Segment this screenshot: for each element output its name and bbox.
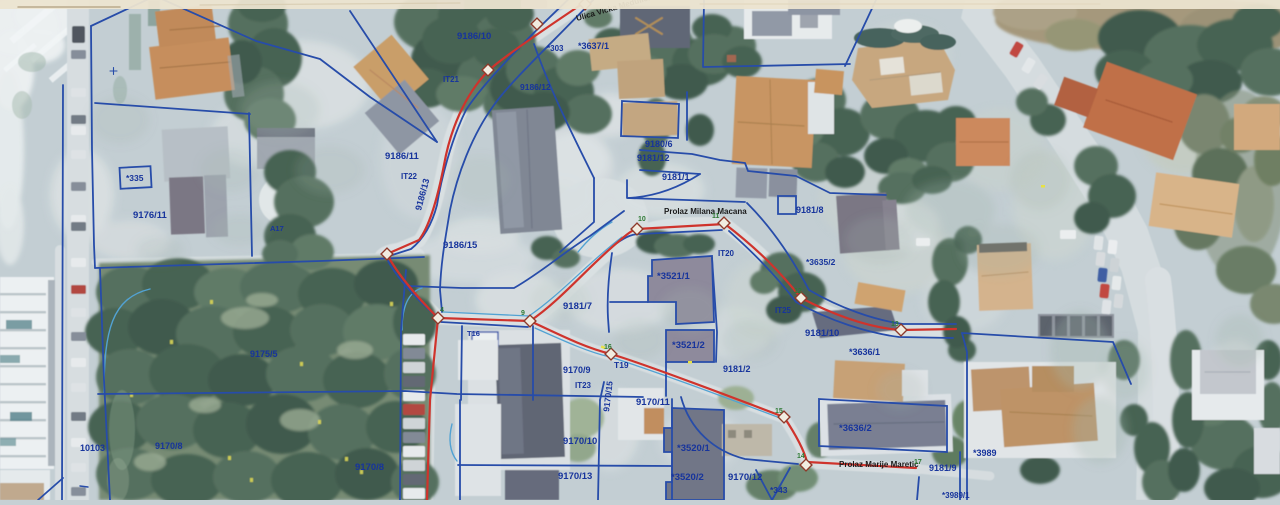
svg-text:9181/10: 9181/10	[805, 328, 839, 339]
svg-text:9186/11: 9186/11	[385, 151, 420, 162]
svg-text:10: 10	[638, 216, 646, 223]
svg-text:11: 11	[712, 213, 720, 220]
svg-text:9170/12: 9170/12	[728, 472, 762, 483]
svg-text:9181/8: 9181/8	[796, 205, 824, 215]
svg-text:Prolaz Marije Maretic: Prolaz Marije Maretic	[839, 460, 919, 469]
svg-text:9181/12: 9181/12	[637, 153, 670, 163]
svg-text:*3637/1: *3637/1	[578, 41, 609, 51]
svg-text:9170/9: 9170/9	[563, 365, 591, 375]
svg-text:9181/2: 9181/2	[723, 364, 751, 374]
svg-text:16: 16	[604, 344, 612, 351]
svg-text:10103: 10103	[80, 443, 105, 453]
svg-text:9170/8: 9170/8	[355, 462, 384, 473]
svg-text:*343: *343	[770, 485, 788, 495]
svg-text:*3520/1: *3520/1	[677, 443, 710, 454]
svg-text:9186/15: 9186/15	[443, 240, 478, 251]
svg-text:IT25: IT25	[775, 306, 792, 315]
svg-text:*3636/2: *3636/2	[839, 423, 872, 434]
svg-text:9181/1: 9181/1	[662, 172, 690, 182]
svg-text:4: 4	[440, 307, 444, 314]
svg-text:15: 15	[775, 408, 783, 415]
svg-text:9186/12: 9186/12	[520, 82, 551, 92]
svg-text:12: 12	[794, 288, 802, 295]
svg-text:*3521/2: *3521/2	[672, 340, 705, 351]
svg-text:9175/5: 9175/5	[250, 349, 278, 359]
svg-text:9170/13: 9170/13	[558, 471, 592, 482]
svg-text:*3635/2: *3635/2	[806, 257, 836, 267]
svg-text:14: 14	[797, 453, 805, 460]
svg-text:9186/10: 9186/10	[457, 31, 491, 42]
svg-text:IT22: IT22	[401, 172, 418, 181]
svg-text:13: 13	[891, 321, 899, 328]
svg-text:*3636/1: *3636/1	[849, 347, 880, 357]
svg-text:Prolaz Milana Macana: Prolaz Milana Macana	[664, 207, 747, 216]
svg-text:9170/10: 9170/10	[563, 436, 597, 447]
svg-text:9180/6: 9180/6	[645, 139, 673, 149]
svg-text:*303: *303	[547, 44, 564, 53]
svg-text:*3521/1: *3521/1	[657, 271, 690, 282]
svg-text:9: 9	[521, 310, 525, 317]
svg-text:9181/7: 9181/7	[563, 301, 592, 312]
svg-text:IT21: IT21	[443, 75, 460, 84]
svg-text:IT20: IT20	[718, 249, 735, 258]
svg-text:T19: T19	[614, 360, 629, 370]
svg-text:A17: A17	[270, 224, 284, 233]
svg-text:9176/11: 9176/11	[133, 210, 168, 221]
svg-text:9181/9: 9181/9	[929, 463, 957, 473]
svg-text:*335: *335	[126, 173, 144, 183]
svg-text:*3989/1: *3989/1	[942, 491, 970, 500]
svg-text:IT23: IT23	[575, 381, 592, 390]
svg-text:*3989: *3989	[973, 448, 997, 458]
svg-text:17: 17	[914, 459, 922, 466]
svg-text:9170/11: 9170/11	[636, 397, 671, 408]
svg-text:T16: T16	[467, 329, 480, 338]
svg-text:*3520/2: *3520/2	[671, 472, 704, 483]
svg-text:9170/8: 9170/8	[155, 441, 183, 451]
